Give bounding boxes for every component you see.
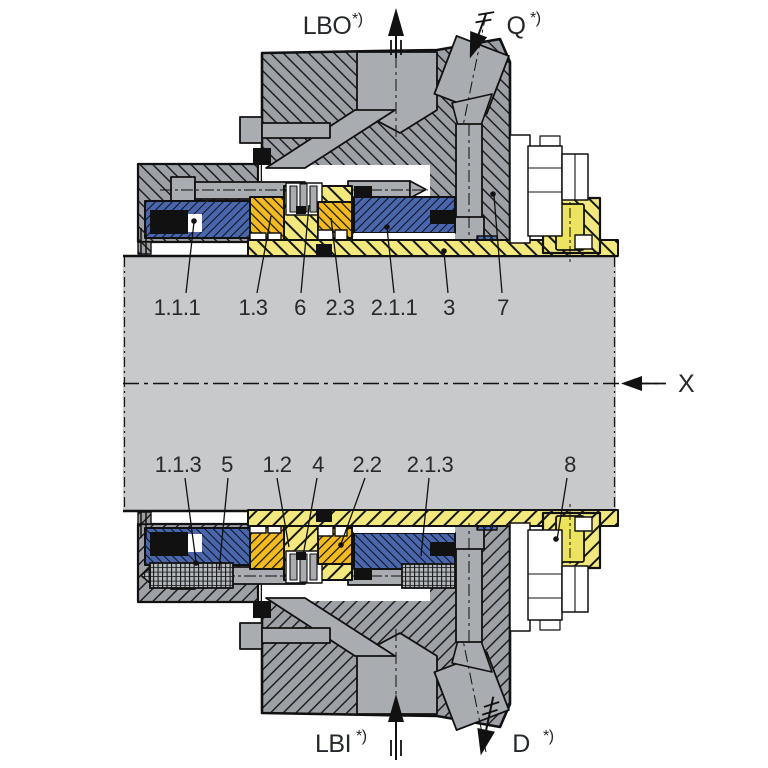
port-d-label: D — [512, 730, 530, 758]
part-label-5: 5 — [221, 452, 233, 477]
o-ring-right — [430, 210, 454, 224]
external-stud-head — [240, 117, 262, 143]
part-label-1-3: 1.3 — [238, 295, 267, 320]
external-stud — [262, 123, 330, 138]
part-label-2-3: 2.3 — [325, 295, 354, 320]
port-lbo-label: LBO — [303, 12, 352, 40]
seal-diagram-svg: 1.1.1 1.3 6 2.3 2.1.1 3 7 1.1.3 5 1.2 4 … — [0, 0, 768, 768]
port-q-suffix: *) — [530, 10, 541, 27]
part-label-2-2: 2.2 — [352, 452, 381, 477]
gland-gasket-strip — [510, 135, 530, 243]
port-q-label: Q — [507, 12, 526, 40]
o-ring-left — [150, 210, 188, 234]
section-axis-label: X — [678, 370, 695, 398]
part-label-2-1-3: 2.1.3 — [407, 452, 454, 477]
gland-bolt — [528, 146, 562, 236]
stud-head — [171, 177, 195, 204]
port-lbi-label: LBI — [315, 730, 351, 758]
part-label-4: 4 — [312, 452, 324, 477]
part-label-2-1-1: 2.1.1 — [371, 295, 418, 320]
part-label-1-1-3: 1.1.3 — [155, 452, 202, 477]
port-lbo-suffix: *) — [352, 11, 363, 28]
part-label-6: 6 — [294, 295, 306, 320]
part-label-7: 7 — [497, 295, 509, 320]
part-label-3: 3 — [443, 295, 455, 320]
part-label-1-1-1: 1.1.1 — [154, 295, 201, 320]
part-label-1-2: 1.2 — [262, 452, 291, 477]
port-d-suffix: *) — [543, 728, 554, 745]
part-label-8: 8 — [564, 452, 576, 477]
port-lbi-suffix: *) — [356, 728, 367, 745]
seal-diagram-figure: 1.1.1 1.3 6 2.3 2.1.1 3 7 1.1.3 5 1.2 4 … — [0, 0, 768, 768]
